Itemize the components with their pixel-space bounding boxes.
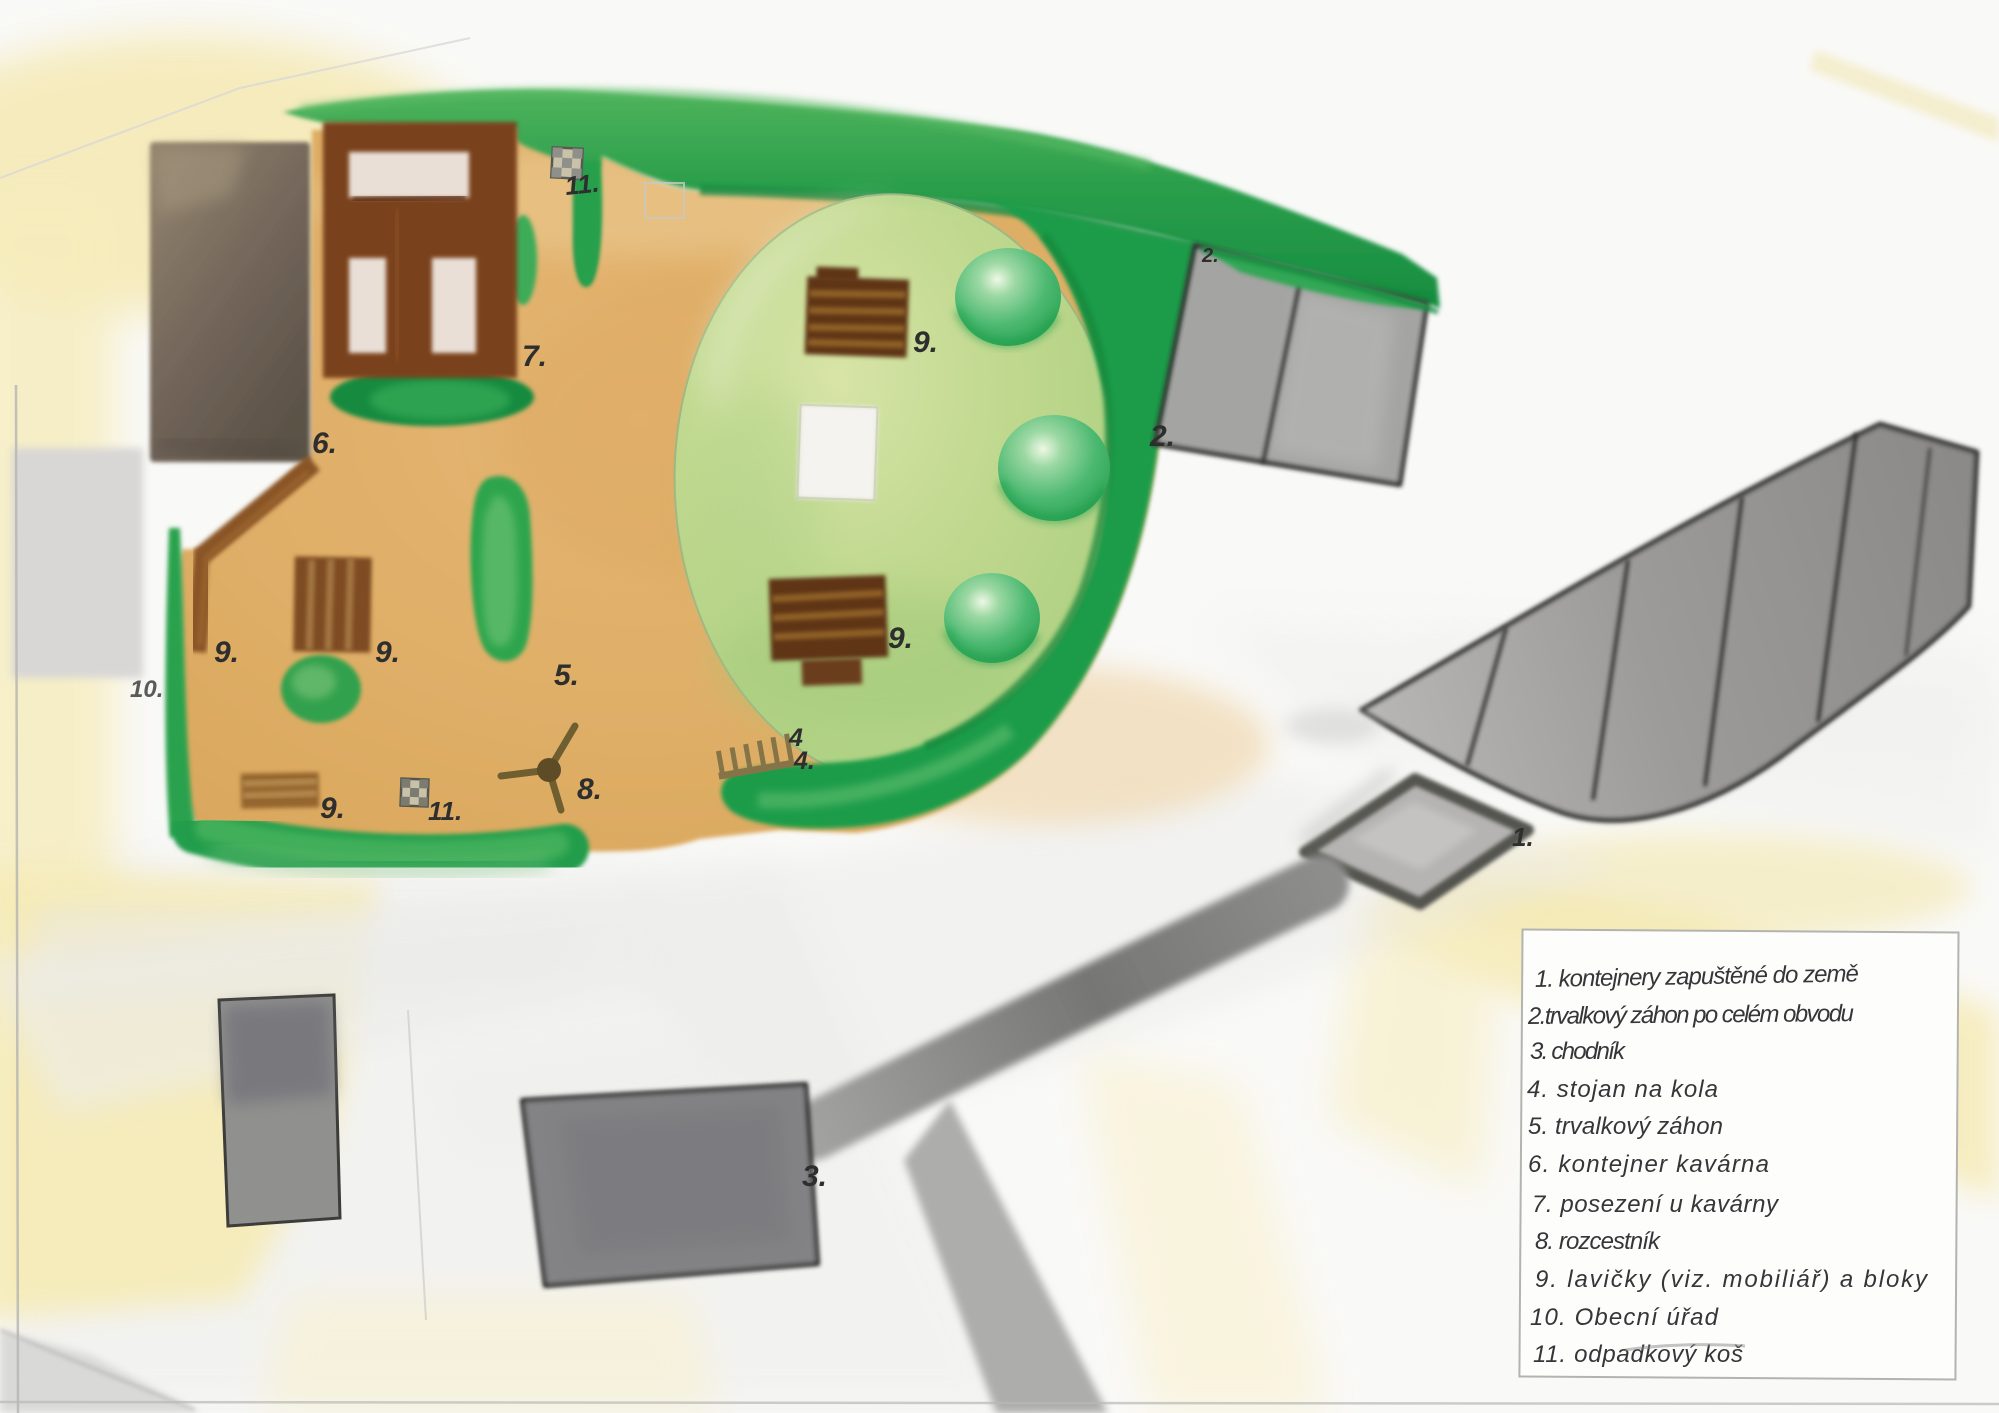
svg-text:9.: 9. [214, 636, 239, 669]
svg-text:3.: 3. [802, 1160, 827, 1193]
svg-text:11.: 11. [428, 796, 462, 826]
svg-text:9.: 9. [888, 622, 913, 655]
svg-text:4.: 4. [793, 747, 815, 775]
svg-text:9.: 9. [375, 636, 400, 669]
svg-text:9.: 9. [913, 326, 938, 359]
svg-text:7.: 7. [522, 340, 547, 373]
svg-text:3. chodník: 3. chodník [1530, 1038, 1627, 1065]
svg-text:7. posezení u kavárny: 7. posezení u kavárny [1532, 1191, 1780, 1218]
svg-text:8.: 8. [577, 773, 602, 806]
svg-text:5.: 5. [554, 659, 579, 692]
svg-text:8. rozcestník: 8. rozcestník [1535, 1228, 1662, 1255]
svg-text:4. stojan na kola: 4. stojan na kola [1527, 1076, 1718, 1103]
svg-text:10. Obecní úřad: 10. Obecní úřad [1530, 1304, 1719, 1331]
svg-text:9.: 9. [320, 792, 345, 825]
svg-text:2.: 2. [1201, 245, 1219, 267]
svg-text:10.: 10. [130, 676, 163, 703]
svg-text:6.: 6. [312, 427, 337, 460]
svg-text:6. kontejner kavárna: 6. kontejner kavárna [1528, 1151, 1769, 1178]
svg-text:11.: 11. [563, 168, 600, 201]
svg-text:5. trvalkový záhon: 5. trvalkový záhon [1528, 1113, 1723, 1140]
svg-text:1.: 1. [1512, 822, 1534, 852]
svg-text:1. kontejnery zapuštěné do zem: 1. kontejnery zapuštěné do země [1535, 960, 1859, 993]
svg-text:2.: 2. [1149, 420, 1175, 453]
svg-text:9. lavičky (viz. mobiliář) a b: 9. lavičky (viz. mobiliář) a bloky [1535, 1266, 1929, 1293]
svg-text:2.trvalkový záhon po celém obv: 2.trvalkový záhon po celém obvodu [1527, 1000, 1854, 1030]
